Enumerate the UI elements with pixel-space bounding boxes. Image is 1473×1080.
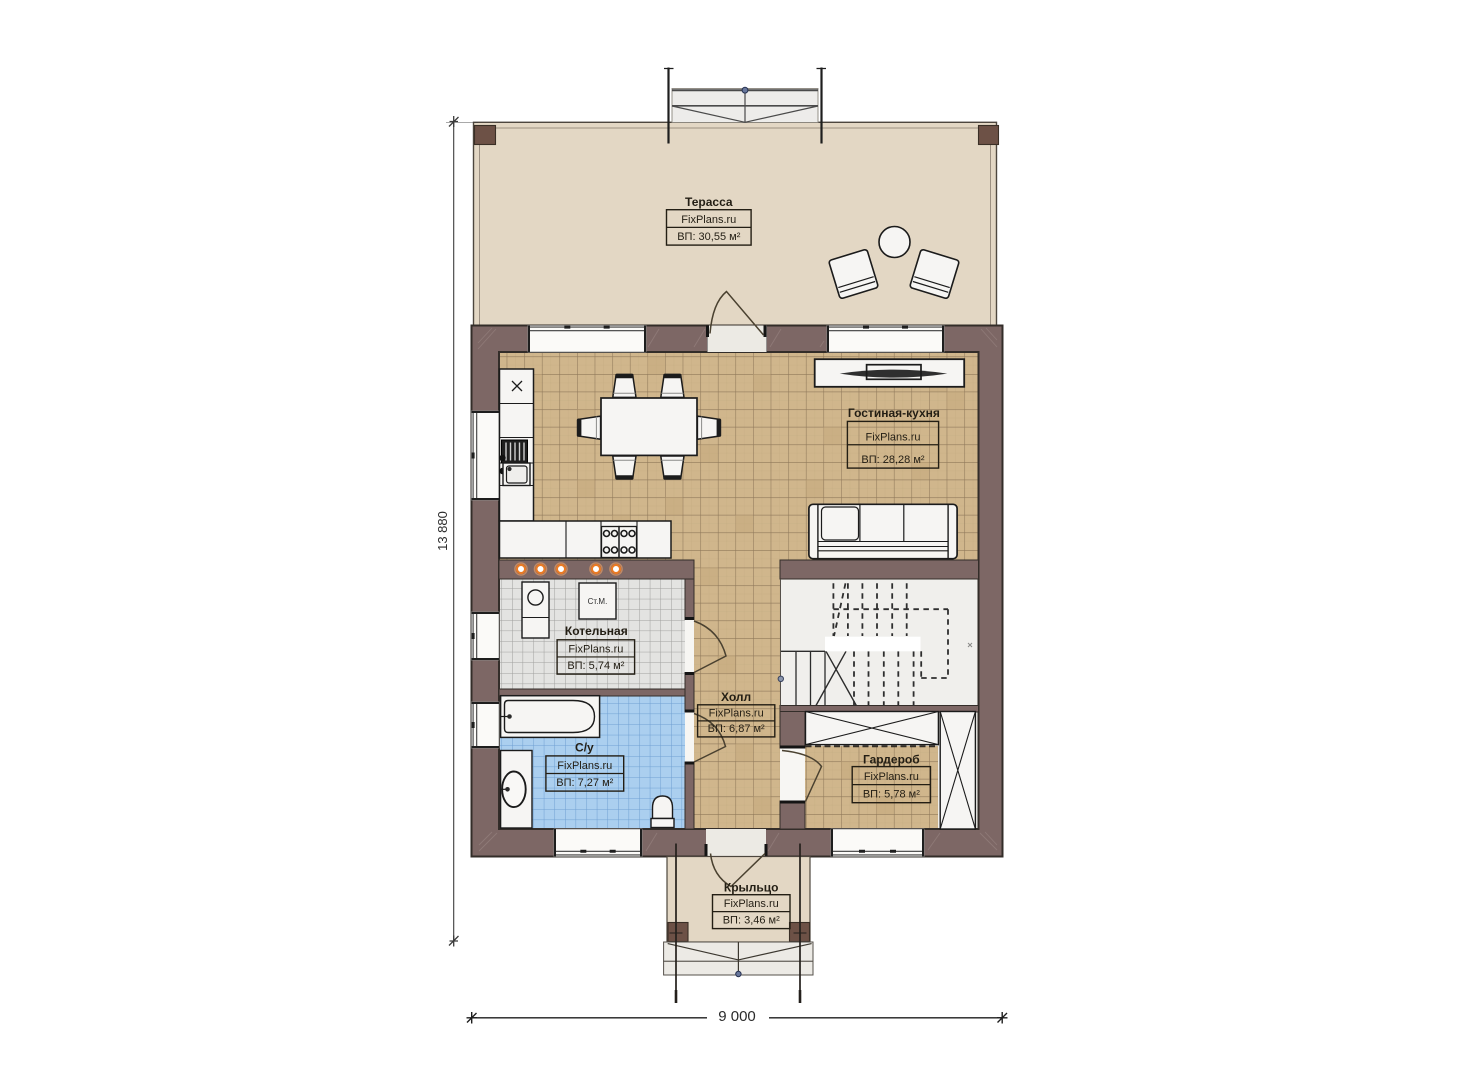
svg-text:FixPlans.ru: FixPlans.ru bbox=[681, 214, 736, 226]
svg-text:FixPlans.ru: FixPlans.ru bbox=[557, 760, 612, 772]
svg-text:Гардероб: Гардероб bbox=[863, 753, 920, 767]
svg-text:Терасса: Терасса bbox=[685, 195, 733, 209]
svg-text:9 000: 9 000 bbox=[718, 1008, 756, 1025]
svg-text:ВП: 30,55 м²: ВП: 30,55 м² bbox=[677, 231, 741, 243]
svg-text:ВП: 28,28 м²: ВП: 28,28 м² bbox=[861, 454, 925, 466]
svg-text:FixPlans.ru: FixPlans.ru bbox=[568, 643, 623, 655]
svg-text:С/у: С/у bbox=[575, 741, 594, 755]
svg-text:FixPlans.ru: FixPlans.ru bbox=[709, 707, 764, 719]
svg-text:ВП: 5,74 м²: ВП: 5,74 м² bbox=[567, 660, 624, 672]
svg-text:FixPlans.ru: FixPlans.ru bbox=[724, 898, 779, 910]
svg-text:FixPlans.ru: FixPlans.ru bbox=[865, 431, 920, 443]
svg-text:ВП: 7,27 м²: ВП: 7,27 м² bbox=[556, 777, 613, 789]
svg-text:ВП: 6,87 м²: ВП: 6,87 м² bbox=[708, 723, 765, 735]
svg-text:Гостиная-кухня: Гостиная-кухня bbox=[848, 406, 940, 420]
svg-text:ВП: 5,78 м²: ВП: 5,78 м² bbox=[863, 789, 920, 801]
svg-text:13 880: 13 880 bbox=[435, 511, 450, 551]
svg-text:ВП: 3,46 м²: ВП: 3,46 м² bbox=[723, 915, 780, 927]
svg-text:Крыльцо: Крыльцо bbox=[724, 881, 779, 895]
svg-text:Котельная: Котельная bbox=[565, 624, 628, 638]
svg-text:Холл: Холл bbox=[721, 690, 751, 704]
svg-text:FixPlans.ru: FixPlans.ru bbox=[864, 771, 919, 783]
svg-text:Ст.М.: Ст.М. bbox=[588, 597, 608, 606]
